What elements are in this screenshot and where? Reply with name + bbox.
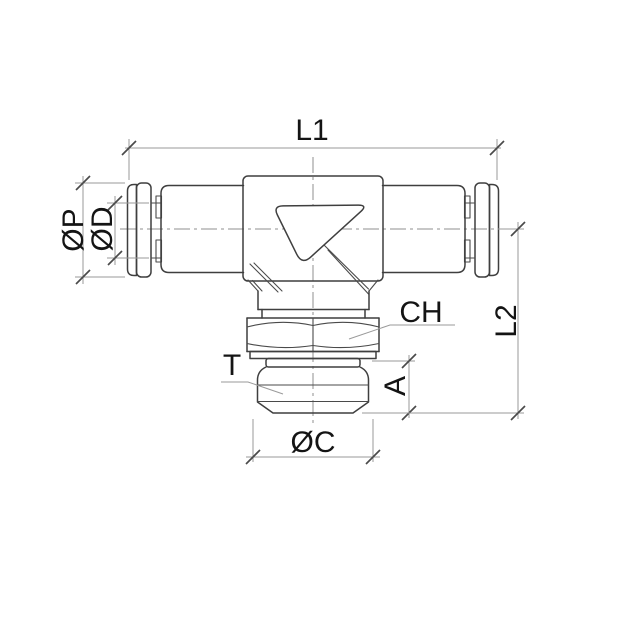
leader-line [221,382,283,394]
brand-triangle-icon [276,205,364,260]
dim-label-l2: L2 [490,304,523,337]
right-port [383,183,499,277]
dim-label-oc: ØC [291,426,336,459]
dim-label-od: ØD [86,207,119,252]
hex-nut [247,318,379,352]
label-t: T [223,349,241,382]
left-port [128,183,244,277]
dim-label-l1: L1 [295,114,328,147]
dim-od: ØD [86,196,149,265]
cap-disc [128,185,137,276]
label-ch: CH [399,296,442,329]
tee-fitting-drawing: L1 ØP ØD ØC A [0,0,620,620]
dim-a: A [372,354,416,420]
release-ring [137,183,152,277]
leader-t: T [221,349,283,394]
dim-label-a: A [379,376,412,396]
technical-drawing-canvas: L1 ØP ØD ØC A [0,0,620,620]
dim-oc: ØC [246,419,380,464]
release-ring [475,183,490,277]
cap-disc [490,185,499,276]
